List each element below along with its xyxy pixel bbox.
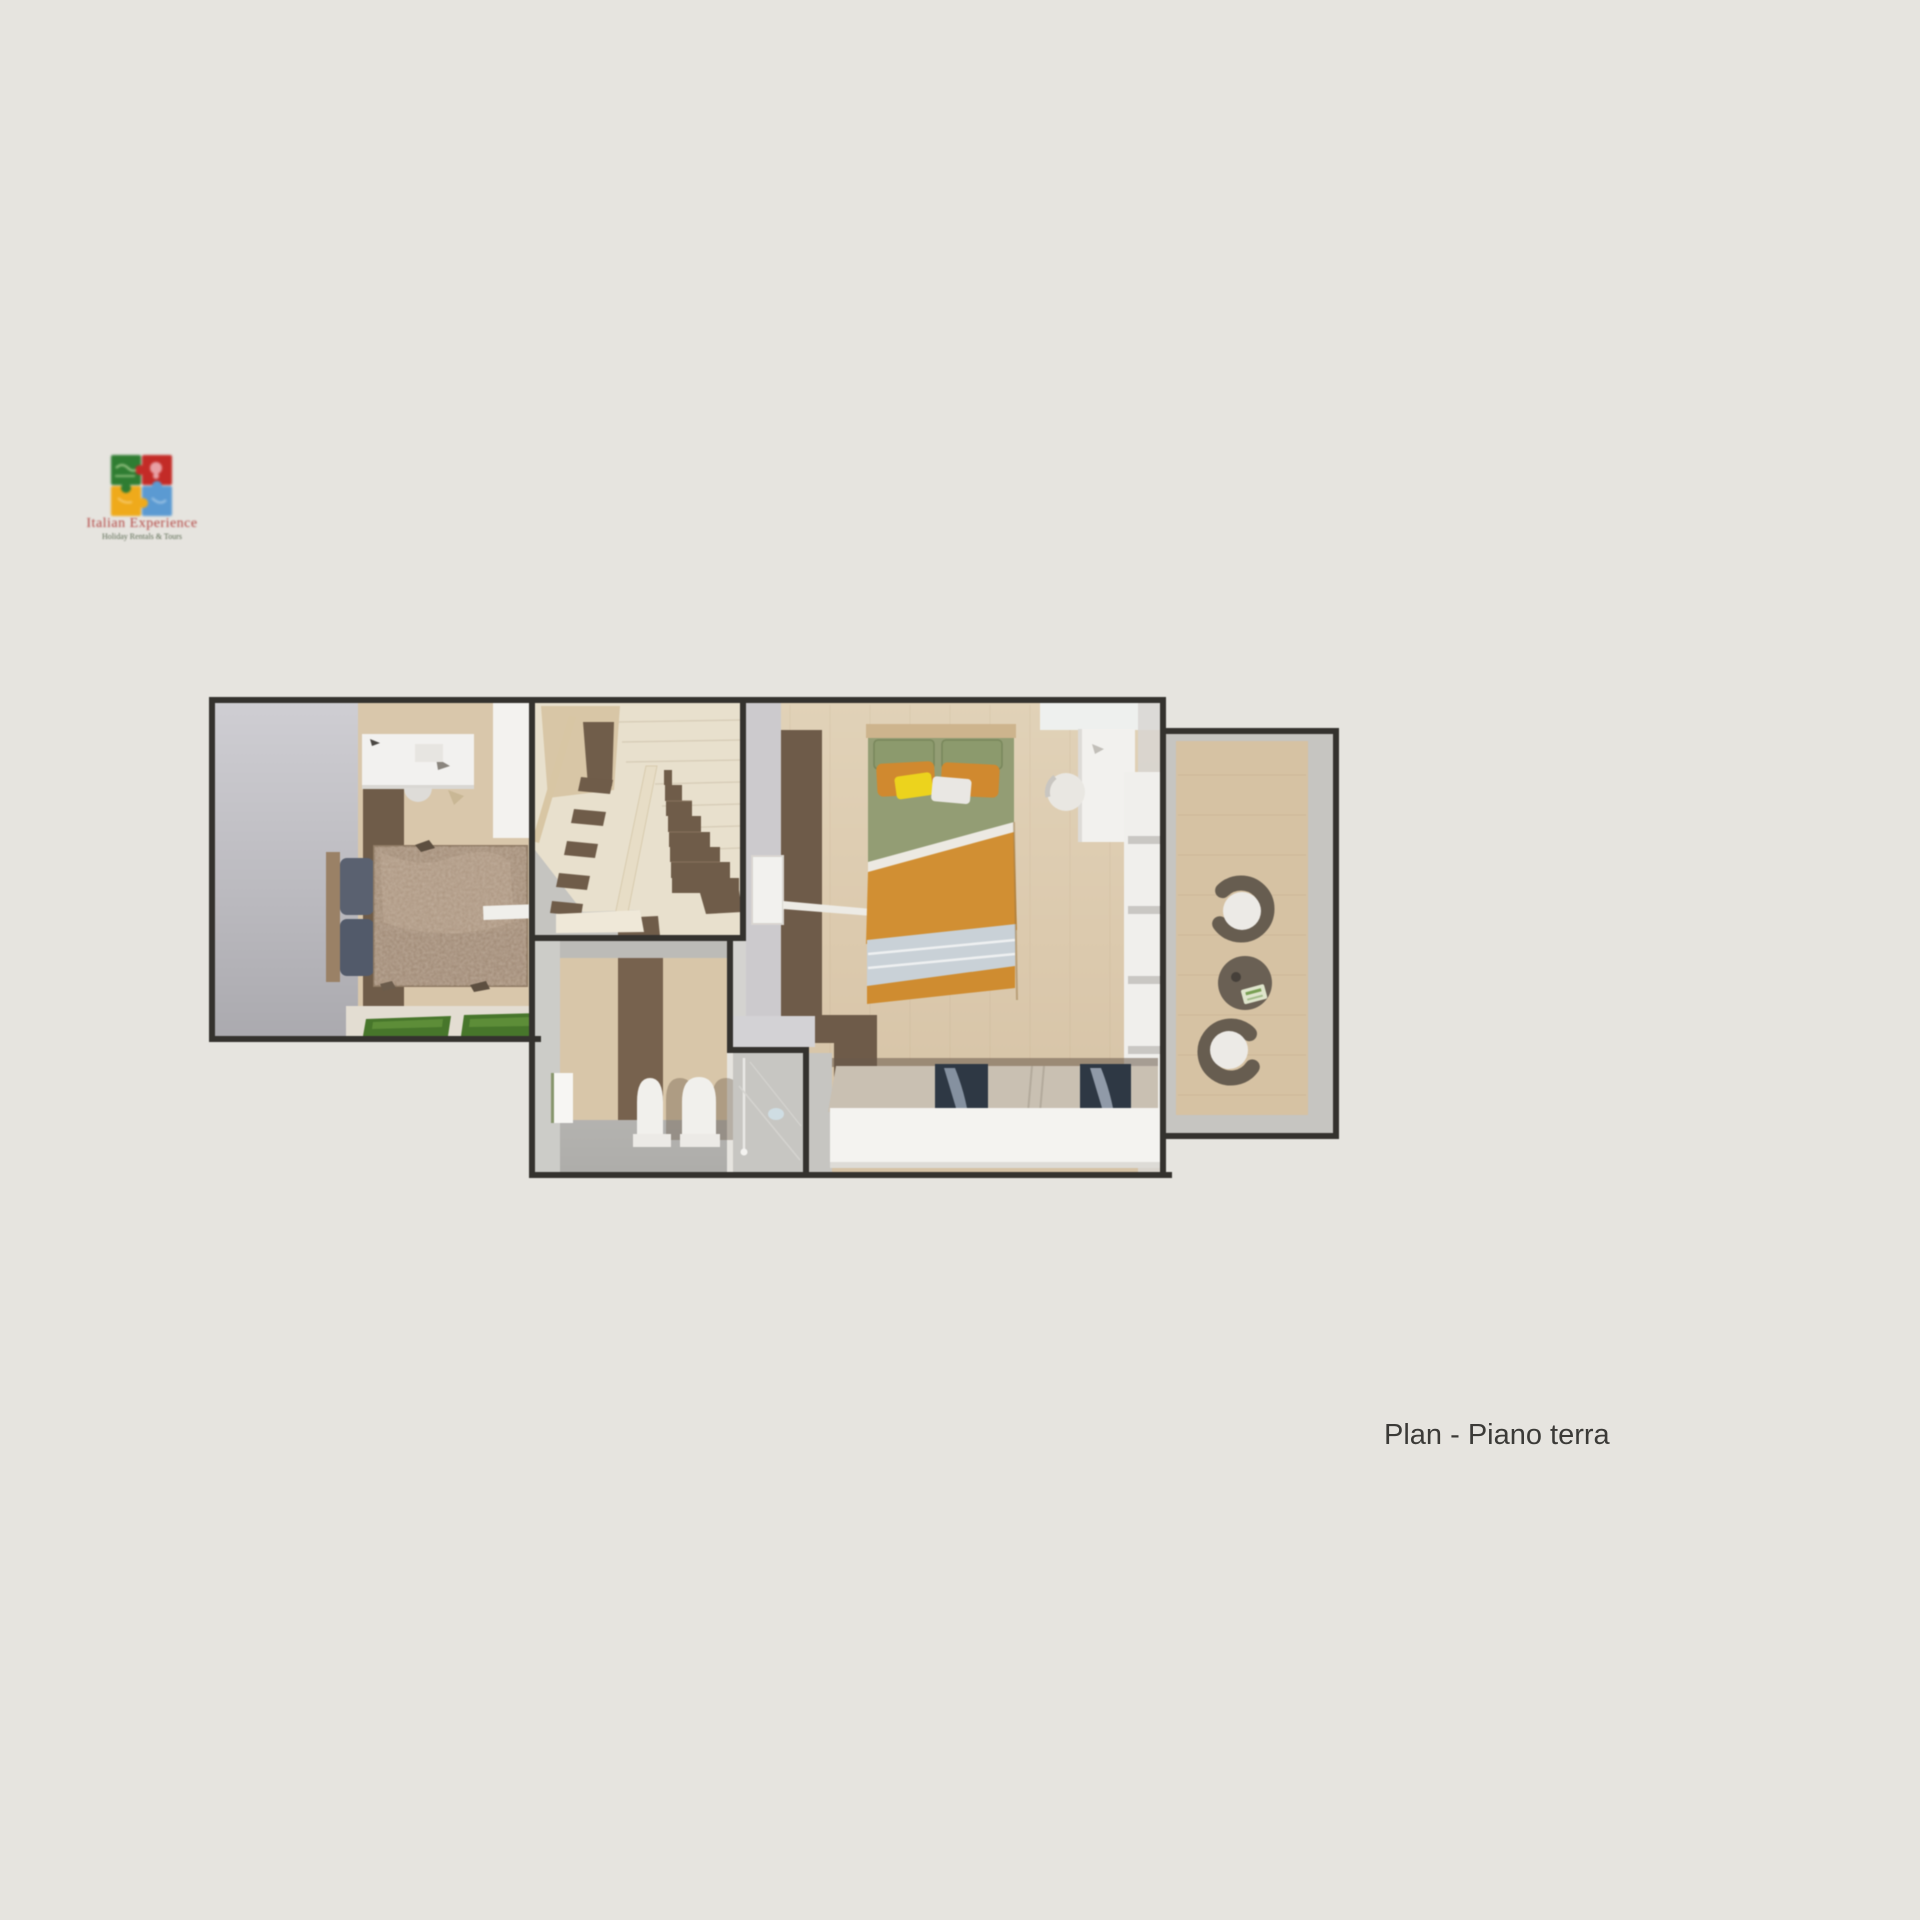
svg-text:Holiday Rentals & Tours: Holiday Rentals & Tours bbox=[102, 532, 182, 541]
svg-text:Plan - Piano terra: Plan - Piano terra bbox=[1384, 1419, 1611, 1451]
svg-text:Italian Experience: Italian Experience bbox=[86, 516, 197, 531]
